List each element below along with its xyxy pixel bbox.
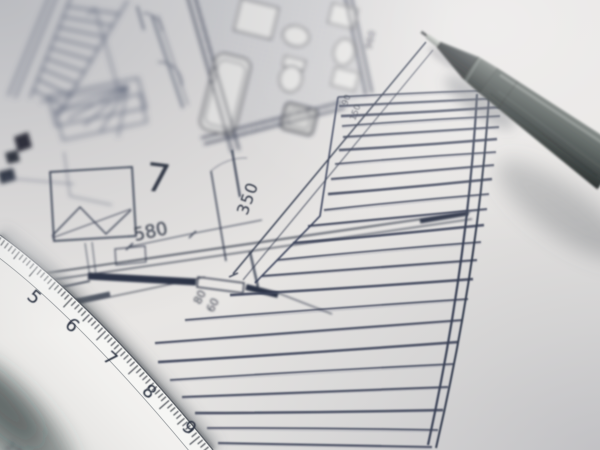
vignette — [0, 0, 600, 450]
photo-floor-plan-scene: 580 7 80 60 350 960 90 150 5 6 — [0, 0, 600, 450]
scene-drawing: 580 7 80 60 350 960 90 150 5 6 — [0, 0, 600, 450]
